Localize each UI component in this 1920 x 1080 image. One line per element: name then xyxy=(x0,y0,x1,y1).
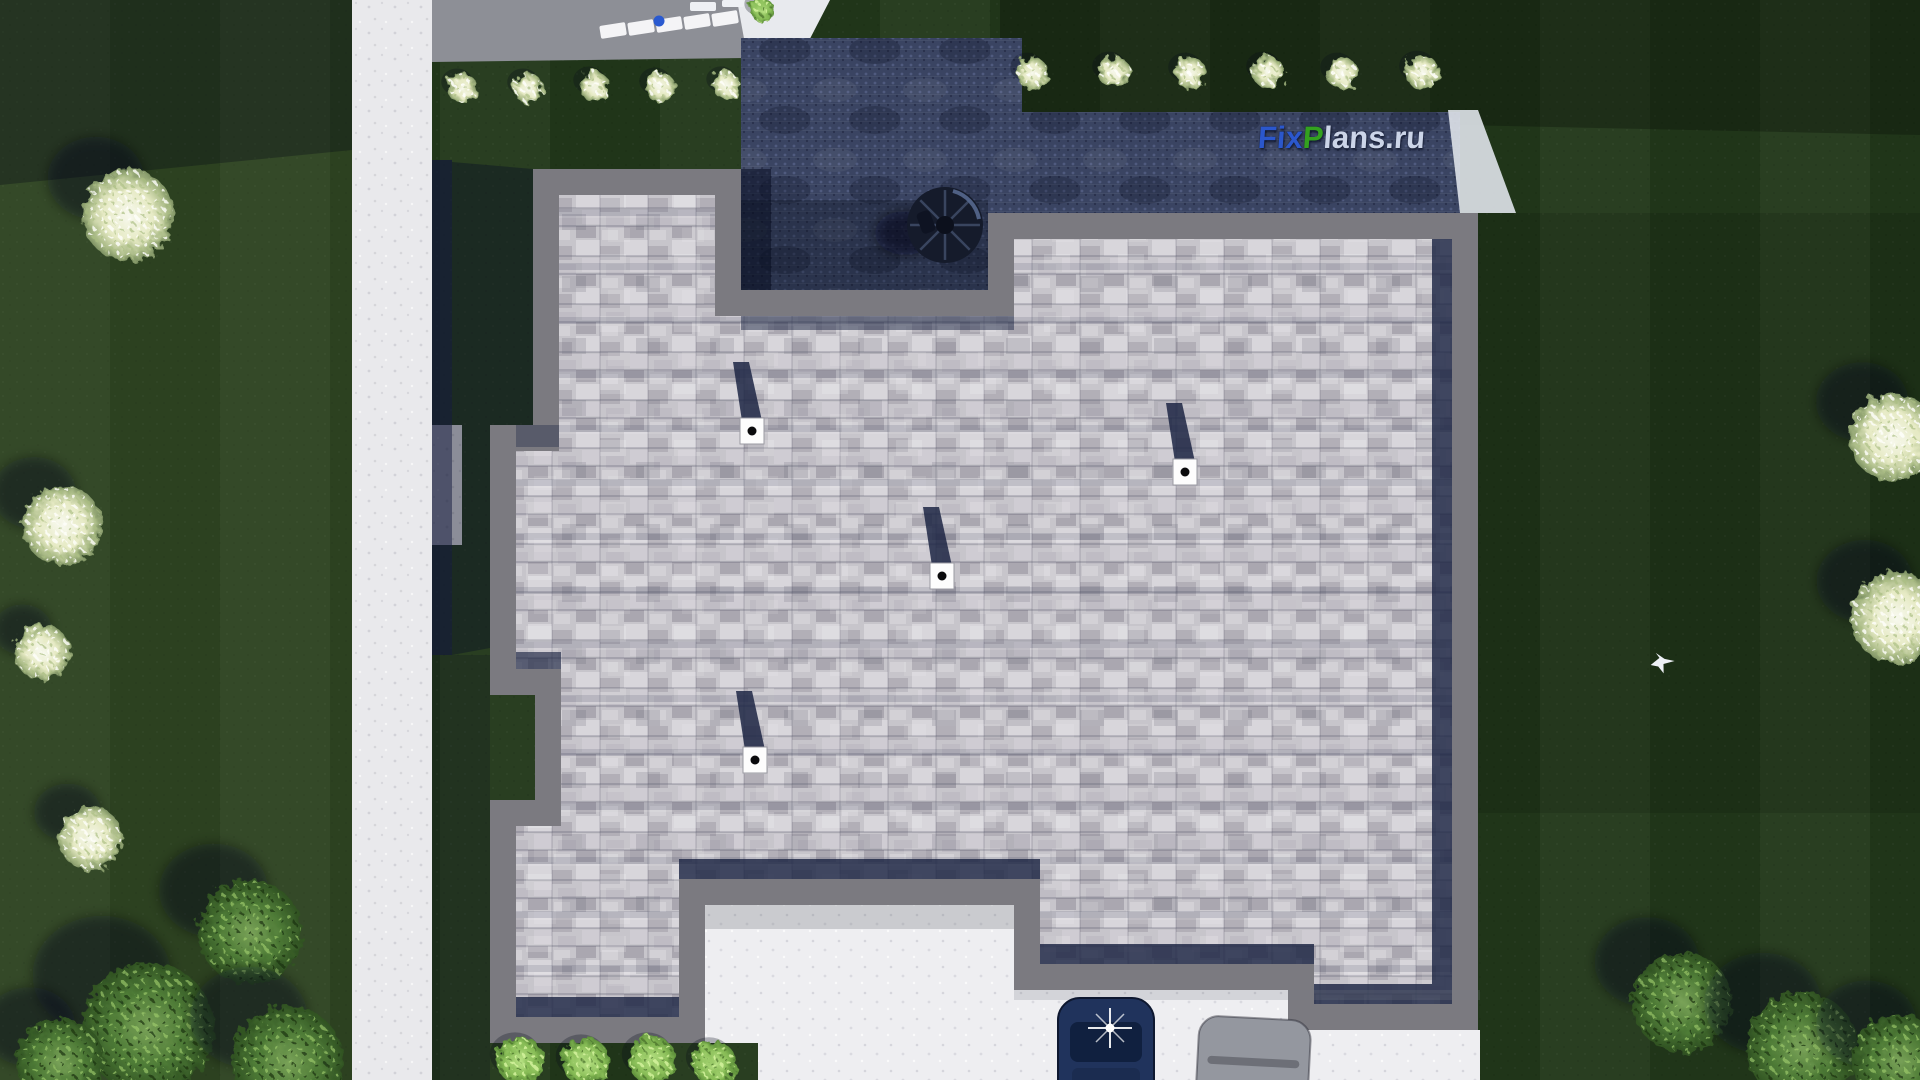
blue-dot-object xyxy=(654,16,665,27)
watermark-fix: Fix xyxy=(1257,120,1304,155)
sidewalk-edge-shadow xyxy=(432,160,452,655)
car-gray xyxy=(1192,1015,1311,1080)
lawn-shade-southwest xyxy=(432,655,490,1080)
top-edge-object xyxy=(722,0,744,7)
site-plan-canvas xyxy=(0,0,1920,1080)
car-dark-blue xyxy=(1058,998,1154,1080)
top-edge-object xyxy=(690,2,716,11)
fixplans-watermark: FixPlans.ru xyxy=(1257,120,1427,156)
aerial-house-render: FixPlans.ru xyxy=(0,0,1920,1080)
watermark-lans: lans xyxy=(1322,120,1386,155)
watermark-ru: .ru xyxy=(1384,120,1426,155)
walkway-step xyxy=(705,905,1014,929)
lawn-east-shade xyxy=(1478,213,1920,813)
